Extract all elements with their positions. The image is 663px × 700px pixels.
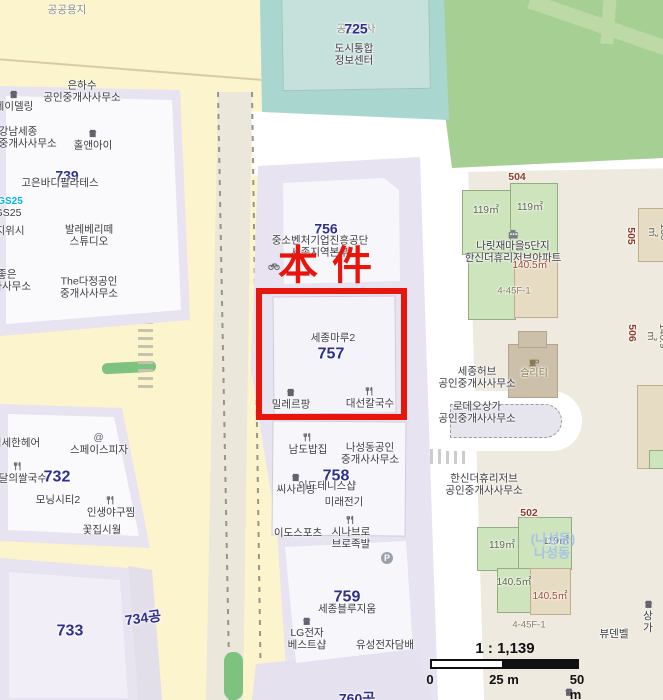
label-thedajeong-text: The다정공인 중개사사무소: [60, 276, 118, 301]
label-mirae-text: 미래전기: [325, 496, 364, 508]
label-namdo: 남도밥집: [289, 432, 328, 455]
map-scale: 1 : 1,139 0 25 m 50 m: [424, 640, 586, 692]
label-area-119-a: 119㎡: [473, 205, 499, 217]
label-734-text: 734공: [124, 607, 162, 628]
scale-tick-25: 25 m: [489, 672, 519, 687]
label-idotennis: 이도테니스샵: [298, 480, 356, 492]
label-gangnamsejong: 강남세종 공인중개사사무소: [0, 126, 57, 151]
label-sangga-text: 상가: [641, 610, 656, 635]
label-jeidelling: 제이델링: [0, 89, 33, 112]
label-addr-445f1-a: 4-45F-1: [497, 285, 530, 296]
map-canvas[interactable]: 공공용지은하수 공인중개사사무소제이델링강남세종 공인중개사사무소홀앤아이739…: [0, 0, 663, 700]
label-area-119-d-text: 119㎡: [543, 536, 569, 548]
scale-segment-black: [504, 659, 579, 669]
label-732-text: 732: [44, 469, 71, 488]
label-ballet: 발레베리떼 스튜디오: [65, 224, 113, 249]
label-area-1405-a-text: 140.5㎡: [512, 260, 547, 272]
label-502: 502: [520, 507, 538, 519]
label-naseongdong-gongin-text: 나성동공인 중개사사무소: [341, 442, 399, 467]
label-504: 504: [508, 171, 526, 183]
label-goeun: 고은바디필라테스: [21, 177, 98, 189]
label-506-text: 506: [626, 324, 638, 342]
label-ballet-text: 발레베리떼 스튜디오: [65, 224, 113, 249]
label-758-text: 758: [323, 468, 350, 487]
label-morningcity2-text: 모닝시티2: [36, 494, 80, 506]
label-spacepizza: @스페이스피자: [70, 432, 128, 456]
label-insaeng: 인생야구찜: [87, 495, 135, 518]
label-gs25-brand: GS25: [0, 196, 23, 208]
label-760: 760공: [339, 691, 375, 700]
label-addr-445f1-b-text: 4-45F-1: [512, 619, 545, 630]
shop-icon: [291, 472, 301, 482]
label-lg: LG전자 베스트샵: [288, 616, 327, 652]
label-jiwisi-text: 지위시: [0, 225, 24, 237]
label-baedal: 배달의쌀국수: [0, 461, 47, 484]
label-area-1409: 140.9㎡: [644, 323, 663, 348]
svg-text:P: P: [384, 553, 390, 563]
label-naseongdong-paren-text: (나성동): [531, 531, 576, 546]
label-namdo-text: 남도밥집: [289, 443, 328, 455]
label-725-faint-text: 공공청사: [337, 23, 376, 35]
label-area-1405-b: 140.5㎡: [496, 577, 531, 589]
label-lg-text: LG전자 베스트샵: [288, 627, 327, 652]
label-naritjae: 나릿재마을5단지 한신더휴리저브아파트: [465, 229, 562, 265]
label-mirae: 미래전기: [325, 496, 364, 508]
label-739: 739: [55, 168, 78, 185]
label-baedal-text: 배달의쌀국수: [0, 472, 47, 484]
label-gonggongyongji-text: 공공용지: [48, 4, 87, 16]
label-yuseong: 유성전자담배: [356, 639, 414, 651]
label-gs25-text: GS25: [0, 207, 21, 219]
label-759: 759: [334, 589, 361, 608]
label-502-text: 502: [520, 507, 538, 519]
label-thedajeong: The다정공인 중개사사무소: [60, 276, 118, 301]
label-734: 734공: [124, 607, 162, 628]
label-dajoeun: 다좋은 중개사사무소: [0, 269, 31, 294]
label-idotennis-text: 이도테니스샵: [298, 480, 356, 492]
label-holandi: 홀앤아이: [74, 128, 113, 151]
label-area-119-b-text: 119㎡: [517, 202, 543, 214]
label-sejonghub: 세종허브 공인중개사사무소: [438, 366, 515, 391]
label-sinabro-text: 시나브로 브로족발: [332, 526, 371, 551]
shop-icon: [9, 89, 19, 99]
scale-tick-0: 0: [426, 672, 433, 687]
label-goeun-text: 고은바디필라테스: [21, 177, 98, 189]
label-kkotjip: 꽃집시월: [83, 524, 122, 536]
shop-icon: [302, 616, 312, 626]
label-rodeo: 로데오상가 공인중개사사무소: [438, 401, 515, 426]
label-area-1405-c-text: 140.5㎡: [532, 591, 567, 603]
label-739-text: 739: [55, 168, 78, 185]
label-758: 758: [323, 468, 350, 487]
label-area-1409-text: 140.9㎡: [644, 323, 663, 348]
label-hanshin-re-text: 한신더휴리저브 공인중개사사무소: [445, 473, 522, 498]
label-cafe-text: 슬리티: [520, 368, 548, 380]
shop-icon: [643, 599, 653, 609]
label-sinabro: 시나브로 브로족발: [332, 515, 371, 551]
label-733-text: 733: [57, 623, 84, 642]
food-icon: [13, 461, 23, 471]
label-parking: P: [381, 552, 394, 565]
label-morningcity2: 모닝시티2: [36, 494, 80, 506]
label-seomse: 섬세한헤어: [0, 437, 40, 449]
label-area-1405-b-text: 140.5㎡: [496, 577, 531, 589]
label-holandi-text: 홀앤아이: [74, 139, 113, 151]
label-area-119-a-text: 119㎡: [473, 205, 499, 217]
label-jiwisi: 지위시: [0, 225, 24, 237]
label-gonggongyongji: 공공용지: [48, 4, 87, 16]
label-insaeng-text: 인생야구찜: [87, 506, 135, 518]
label-506: 506: [626, 324, 638, 342]
subject-parcel-label: 本件: [264, 233, 386, 291]
label-bluezium-text: 세종블루지움: [318, 603, 376, 615]
label-cafe: 슬리티: [520, 358, 548, 380]
scale-ratio: 1 : 1,139: [424, 640, 586, 657]
food-icon: [106, 495, 116, 505]
label-area-1405-c: 140.5㎡: [532, 591, 567, 603]
label-725-faint: 공공청사: [337, 23, 376, 35]
label-seomse-text: 섬세한헤어: [0, 437, 40, 449]
label-addr-445f1-b: 4-45F-1: [512, 619, 545, 630]
label-bluezium: 세종블루지움: [318, 603, 376, 615]
label-eunhasu: 은하수 공인중개사사무소: [43, 80, 120, 105]
label-area-138: 138㎡: [645, 224, 663, 241]
label-dosi: 도시통합 정보센터: [335, 43, 374, 68]
label-ssisariving-text: 씨사리빙: [277, 483, 316, 495]
label-dajoeun-text: 다좋은 중개사사무소: [0, 269, 31, 294]
label-sangga: 상가: [641, 599, 656, 635]
label-naritjae-text: 나릿재마을5단지 한신더휴리저브아파트: [465, 240, 562, 265]
parking-icon: P: [381, 552, 394, 565]
label-byudenbel-text: 뷰덴벨: [600, 628, 629, 640]
label-dosi-text: 도시통합 정보센터: [335, 43, 374, 68]
label-area-138-text: 138㎡: [645, 224, 663, 241]
label-hanshin-re: 한신더휴리저브 공인중개사사무소: [445, 473, 522, 498]
label-sejonghub-text: 세종허브 공인중개사사무소: [438, 366, 515, 391]
label-yuseong-text: 유성전자담배: [356, 639, 414, 651]
label-naseongdong-gongin: 나성동공인 중개사사무소: [341, 442, 399, 467]
subject-parcel-highlight: [256, 288, 407, 420]
label-byudenbel: 뷰덴벨: [600, 628, 629, 640]
label-732: 732: [44, 469, 71, 488]
cafe-icon: [528, 358, 539, 367]
label-naseongdong-text: 나성동: [534, 545, 570, 560]
label-ssisariving: 씨사리빙: [277, 472, 316, 495]
label-area-1405-a: 140.5㎡: [512, 260, 547, 272]
label-spacepizza-text: 스페이스피자: [70, 444, 128, 456]
at-icon: @: [94, 432, 105, 443]
label-505-text: 505: [625, 227, 637, 245]
label-area-119-b: 119㎡: [517, 202, 543, 214]
apt-icon: [507, 229, 518, 239]
label-idosports: 이도스포츠: [274, 527, 322, 539]
scale-segment-white: [430, 659, 504, 669]
label-759-text: 759: [334, 589, 361, 608]
scale-tick-50: 50 m: [570, 672, 584, 700]
label-725-text: 725: [344, 21, 367, 38]
label-naseongdong: 나성동: [534, 545, 570, 560]
food-icon: [303, 432, 313, 442]
label-addr-445f1-a-text: 4-45F-1: [497, 285, 530, 296]
label-area-119-d: 119㎡: [543, 536, 569, 548]
label-gs25-brand-text: GS25: [0, 196, 23, 208]
label-eunhasu-text: 은하수 공인중개사사무소: [43, 80, 120, 105]
label-naseongdong-paren: (나성동): [531, 531, 576, 546]
label-rodeo-text: 로데오상가 공인중개사사무소: [438, 401, 515, 426]
label-760-text: 760공: [339, 691, 375, 700]
scale-bar: [430, 659, 579, 669]
svg-text:@: @: [94, 432, 104, 442]
label-gs25: GS25: [0, 207, 21, 219]
label-idosports-text: 이도스포츠: [274, 527, 322, 539]
label-area-119-c: 119㎡: [489, 540, 515, 552]
shop-icon: [88, 128, 98, 138]
label-jeidelling-text: 제이델링: [0, 100, 33, 112]
label-504-text: 504: [508, 171, 526, 183]
label-505: 505: [625, 227, 637, 245]
label-725: 725: [344, 21, 367, 38]
label-area-119-c-text: 119㎡: [489, 540, 515, 552]
label-733: 733: [57, 623, 84, 642]
label-gangnamsejong-text: 강남세종 공인중개사사무소: [0, 126, 57, 151]
food-icon: [346, 515, 356, 525]
label-kkotjip-text: 꽃집시월: [83, 524, 122, 536]
